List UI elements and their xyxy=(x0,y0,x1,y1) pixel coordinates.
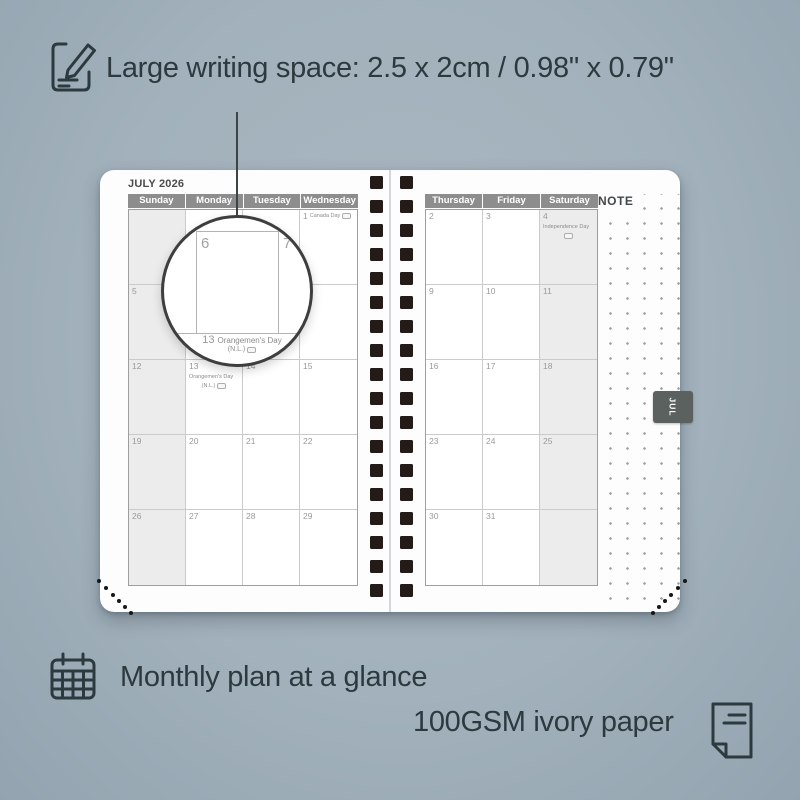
binding-square xyxy=(370,272,383,285)
binding-square xyxy=(400,176,413,189)
magnified-gridline xyxy=(196,231,313,232)
calendar-cell: 30 xyxy=(426,510,483,585)
calendar-cell: 18 xyxy=(540,360,597,435)
binding-square xyxy=(400,344,413,357)
binding-square xyxy=(370,296,383,309)
binding-square xyxy=(400,440,413,453)
calendar-cell: 14 xyxy=(243,360,300,435)
binding-square xyxy=(370,392,383,405)
binding-square xyxy=(370,224,383,237)
binding-square xyxy=(400,224,413,237)
binding-square xyxy=(400,560,413,573)
day-header: Sunday xyxy=(128,194,185,208)
day-header: Tuesday xyxy=(244,194,301,208)
stitch-dot xyxy=(657,605,661,609)
stitch-dot xyxy=(669,593,673,597)
calendar-cell: 25 xyxy=(540,435,597,510)
calendar-cell: 17 xyxy=(483,360,540,435)
planner-spread: JULY 2026 SundayMondayTuesdayWednesday1C… xyxy=(100,170,680,612)
binding-square xyxy=(370,488,383,501)
binding-square xyxy=(370,416,383,429)
binding-square xyxy=(400,488,413,501)
binding-square xyxy=(370,536,383,549)
binding-square xyxy=(370,176,383,189)
holiday-flag-icon xyxy=(342,213,351,219)
binding-square xyxy=(400,584,413,597)
stitch-dot xyxy=(663,599,667,603)
calendar-cell: 4Independence Day xyxy=(540,210,597,285)
calendar-cell: 26 xyxy=(129,510,186,585)
binding-square xyxy=(370,368,383,381)
pointer-line xyxy=(236,112,238,217)
binding-square xyxy=(400,296,413,309)
holiday-flag-icon xyxy=(564,233,573,239)
binding-square xyxy=(370,512,383,525)
calendar-cell: 21 xyxy=(243,435,300,510)
calendar-cell: 9 xyxy=(426,285,483,360)
calendar-cell: 10 xyxy=(483,285,540,360)
month-tab-jul: JUL xyxy=(653,391,693,423)
day-header: Thursday xyxy=(425,194,482,208)
magnified-gridline xyxy=(196,231,197,333)
calendar-cell: 24 xyxy=(483,435,540,510)
spiral-binding xyxy=(366,176,418,608)
stitch-dot xyxy=(676,586,680,590)
binding-square xyxy=(370,464,383,477)
calendar-cell: 11 xyxy=(540,285,597,360)
binding-square xyxy=(400,248,413,261)
pencil-note-icon xyxy=(48,36,98,96)
annotation-writing-space: Large writing space: 2.5 x 2cm / 0.98" x… xyxy=(106,52,674,85)
binding-square xyxy=(400,416,413,429)
stitch-dot xyxy=(104,586,108,590)
day-header: Monday xyxy=(186,194,243,208)
binding-square xyxy=(370,440,383,453)
magnified-gridline xyxy=(278,218,279,333)
product-image: Large writing space: 2.5 x 2cm / 0.98" x… xyxy=(0,0,800,800)
binding-square xyxy=(370,584,383,597)
magnified-day-7: 7 xyxy=(283,235,291,252)
annotation-monthly-plan: Monthly plan at a glance xyxy=(120,661,427,694)
binding-square xyxy=(400,464,413,477)
binding-square xyxy=(400,512,413,525)
calendar-cell: 29 xyxy=(300,510,357,585)
stitch-dot xyxy=(97,579,101,583)
calendar-right-page: ThursdayFridaySaturday234Independence Da… xyxy=(425,194,598,586)
calendar-cell: 19 xyxy=(129,435,186,510)
calendar-cell: 13Orangemen's Day(N.L.) xyxy=(186,360,243,435)
stitch-dot xyxy=(117,599,121,603)
binding-square xyxy=(370,344,383,357)
binding-square xyxy=(370,560,383,573)
paper-icon xyxy=(705,700,757,762)
binding-square xyxy=(370,200,383,213)
magnified-day-6: 6 xyxy=(201,235,209,252)
binding-square xyxy=(400,272,413,285)
binding-square xyxy=(370,248,383,261)
holiday-flag-icon xyxy=(217,383,226,389)
calendar-icon xyxy=(48,652,98,702)
binding-square xyxy=(400,392,413,405)
stitch-dot xyxy=(129,611,133,615)
calendar-cell: 23 xyxy=(426,435,483,510)
calendar-cell: 12 xyxy=(129,360,186,435)
annotation-paper: 100GSM ivory paper xyxy=(413,706,674,739)
magnified-holiday: 13Orangemen's Day (N.L.) xyxy=(190,334,294,353)
calendar-cell: 31 xyxy=(483,510,540,585)
calendar-cell: 16 xyxy=(426,360,483,435)
binding-square xyxy=(400,536,413,549)
note-label: NOTE xyxy=(598,194,639,210)
calendar-cell: 28 xyxy=(243,510,300,585)
day-header: Friday xyxy=(483,194,540,208)
holiday-flag-icon xyxy=(247,347,256,353)
month-tab-label: JUL xyxy=(668,397,678,416)
stitch-dot xyxy=(111,593,115,597)
calendar-cell: 22 xyxy=(300,435,357,510)
calendar-cell: 3 xyxy=(483,210,540,285)
binding-square xyxy=(400,200,413,213)
day-header: Saturday xyxy=(541,194,598,208)
calendar-cell: 20 xyxy=(186,435,243,510)
binding-square xyxy=(400,368,413,381)
calendar-cell: 15 xyxy=(300,360,357,435)
stitch-dot xyxy=(683,579,687,583)
calendar-cell: 27 xyxy=(186,510,243,585)
calendar-cell xyxy=(540,510,597,585)
binding-square xyxy=(370,320,383,333)
day-header: Wednesday xyxy=(301,194,358,208)
month-title: JULY 2026 xyxy=(128,178,184,190)
stitch-dot xyxy=(651,611,655,615)
magnifier-circle: 6 7 13Orangemen's Day (N.L.) xyxy=(161,215,313,367)
stitch-dot xyxy=(123,605,127,609)
binding-square xyxy=(400,320,413,333)
calendar-cell: 2 xyxy=(426,210,483,285)
